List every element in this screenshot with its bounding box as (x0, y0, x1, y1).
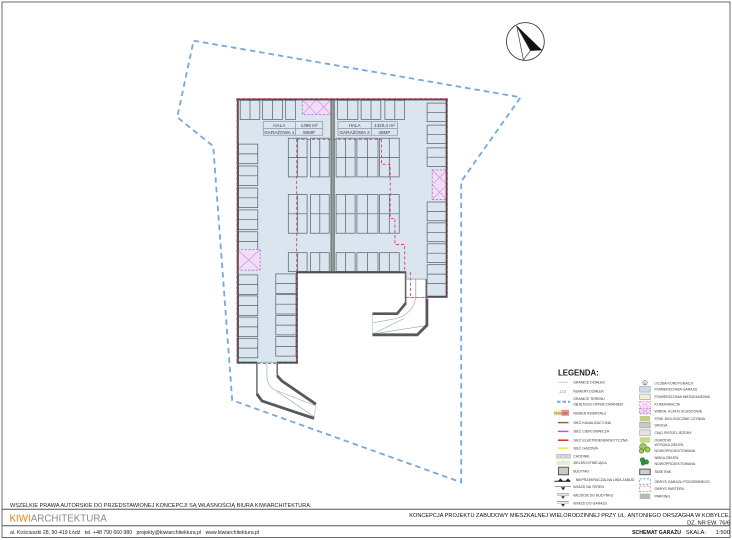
svg-text:NUMER KWARTAŁU: NUMER KWARTAŁU (573, 411, 606, 415)
svg-text:POWIERZCHNIA MIESZKANIOWA: POWIERZCHNIA MIESZKANIOWA (655, 395, 711, 399)
svg-text:NIEPRZEKRACZALNA LINIA ZABUD.: NIEPRZEKRACZALNA LINIA ZABUD. (576, 478, 636, 482)
svg-text:SKALA:: SKALA: (686, 530, 707, 536)
svg-text:OBJĘTEGO OPRACOWANIEM: OBJĘTEGO OPRACOWANIEM (573, 403, 623, 407)
svg-text:6: 6 (644, 381, 646, 385)
svg-text:al. Kościuszki 28, 90-419 Łódź: al. Kościuszki 28, 90-419 Łódź tel. +48 … (10, 530, 259, 536)
svg-text:LICZBA KONDYGNACJI: LICZBA KONDYGNACJI (655, 381, 693, 385)
svg-text:GARAŻOWA 2: GARAŻOWA 2 (339, 129, 370, 135)
svg-text:NUMERY DZIAŁEK: NUMERY DZIAŁEK (573, 389, 604, 393)
svg-text:WJAZD NA TEREN: WJAZD NA TEREN (573, 485, 604, 489)
svg-text:KOMUNIKACJA: KOMUNIKACJA (655, 403, 681, 407)
svg-text:SCHEMAT GARAŻU: SCHEMAT GARAŻU (632, 529, 681, 536)
svg-text:WJAZD DO GARAŻU: WJAZD DO GARAŻU (573, 500, 607, 505)
svg-text:POWIERZCHNIA GARAŻU: POWIERZCHNIA GARAŻU (655, 387, 698, 392)
svg-text:DZ. NR EW. 76/6: DZ. NR EW. 76/6 (687, 520, 730, 526)
svg-text:1496 m²: 1496 m² (301, 123, 318, 128)
svg-text:KONCEPCJA PROJEKTU ZABUDOWY MI: KONCEPCJA PROJEKTU ZABUDOWY MIESZKALNEJ … (409, 513, 730, 519)
svg-text:WSZELKIE PRAWA AUTORSKIE DO PR: WSZELKIE PRAWA AUTORSKIE DO PRZEDSTAWION… (10, 501, 312, 509)
svg-text:CIĄG PIESZO-JEZDNY: CIĄG PIESZO-JEZDNY (655, 431, 693, 435)
svg-text:SIEĆ ELEKTROENERGETYCZNA: SIEĆ ELEKTROENERGETYCZNA (573, 438, 628, 443)
svg-text:NOWOPROJEKTOWANA: NOWOPROJEKTOWANA (655, 449, 696, 453)
svg-text:OBRYS GARAŻU PODZIEMNEGO: OBRYS GARAŻU PODZIEMNEGO (655, 479, 710, 484)
svg-text:1420,4 m²: 1420,4 m² (374, 123, 395, 128)
svg-text:HALA: HALA (349, 123, 362, 128)
svg-text:ŚMIETNIK: ŚMIETNIK (655, 469, 672, 474)
svg-text:SIEĆ KANALIZACYJNA: SIEĆ KANALIZACYJNA (573, 420, 611, 425)
svg-text:SIEĆ CIEPŁOWNICZA: SIEĆ CIEPŁOWNICZA (573, 429, 610, 434)
svg-text:KIWIARCHITEKTURA: KIWIARCHITEKTURA (10, 513, 108, 524)
svg-text:HALA: HALA (273, 123, 286, 128)
svg-text:ZIELEŃ ISTNIEJĄCA: ZIELEŃ ISTNIEJĄCA (573, 461, 607, 465)
svg-text:WYSOKA ZIELEŃ: WYSOKA ZIELEŃ (655, 443, 684, 447)
svg-text:GARAŻOWA 1: GARAŻOWA 1 (264, 129, 295, 135)
svg-text:50MP: 50MP (303, 130, 315, 135)
svg-text:PARKING: PARKING (655, 495, 671, 499)
svg-text:WINDA, KLATKI SCHODOWE: WINDA, KLATKI SCHODOWE (655, 409, 703, 413)
svg-text:CHODNIK: CHODNIK (573, 455, 590, 459)
svg-text:OBRYS PARTERU: OBRYS PARTERU (655, 487, 685, 491)
svg-text:GRANICE DZIAŁEK: GRANICE DZIAŁEK (573, 381, 605, 385)
svg-text:GRANICE TERENU: GRANICE TERENU (573, 397, 605, 401)
svg-text:LEGENDA:: LEGENDA: (558, 369, 599, 378)
svg-text:SIEĆ GAZOWA: SIEĆ GAZOWA (573, 445, 598, 450)
svg-text:MW/UR: MW/UR (554, 412, 568, 416)
svg-text:DROGA: DROGA (655, 424, 669, 428)
svg-text:48MP: 48MP (378, 130, 390, 135)
svg-text:NOWOPROJEKTOWANA: NOWOPROJEKTOWANA (655, 462, 696, 466)
svg-text:POW. BIOLOGICZNIE CZYNNA: POW. BIOLOGICZNIE CZYNNA (655, 417, 706, 421)
svg-text:NISKA ZIELEŃ: NISKA ZIELEŃ (655, 456, 679, 460)
svg-text:OGRÓDKI: OGRÓDKI (655, 437, 672, 442)
svg-text:1:500: 1:500 (715, 530, 730, 536)
svg-text:WEJŚCIE DO BUDYNKU: WEJŚCIE DO BUDYNKU (573, 492, 613, 497)
svg-text:123: 123 (559, 389, 567, 394)
svg-text:BUDYNKI: BUDYNKI (573, 469, 589, 473)
